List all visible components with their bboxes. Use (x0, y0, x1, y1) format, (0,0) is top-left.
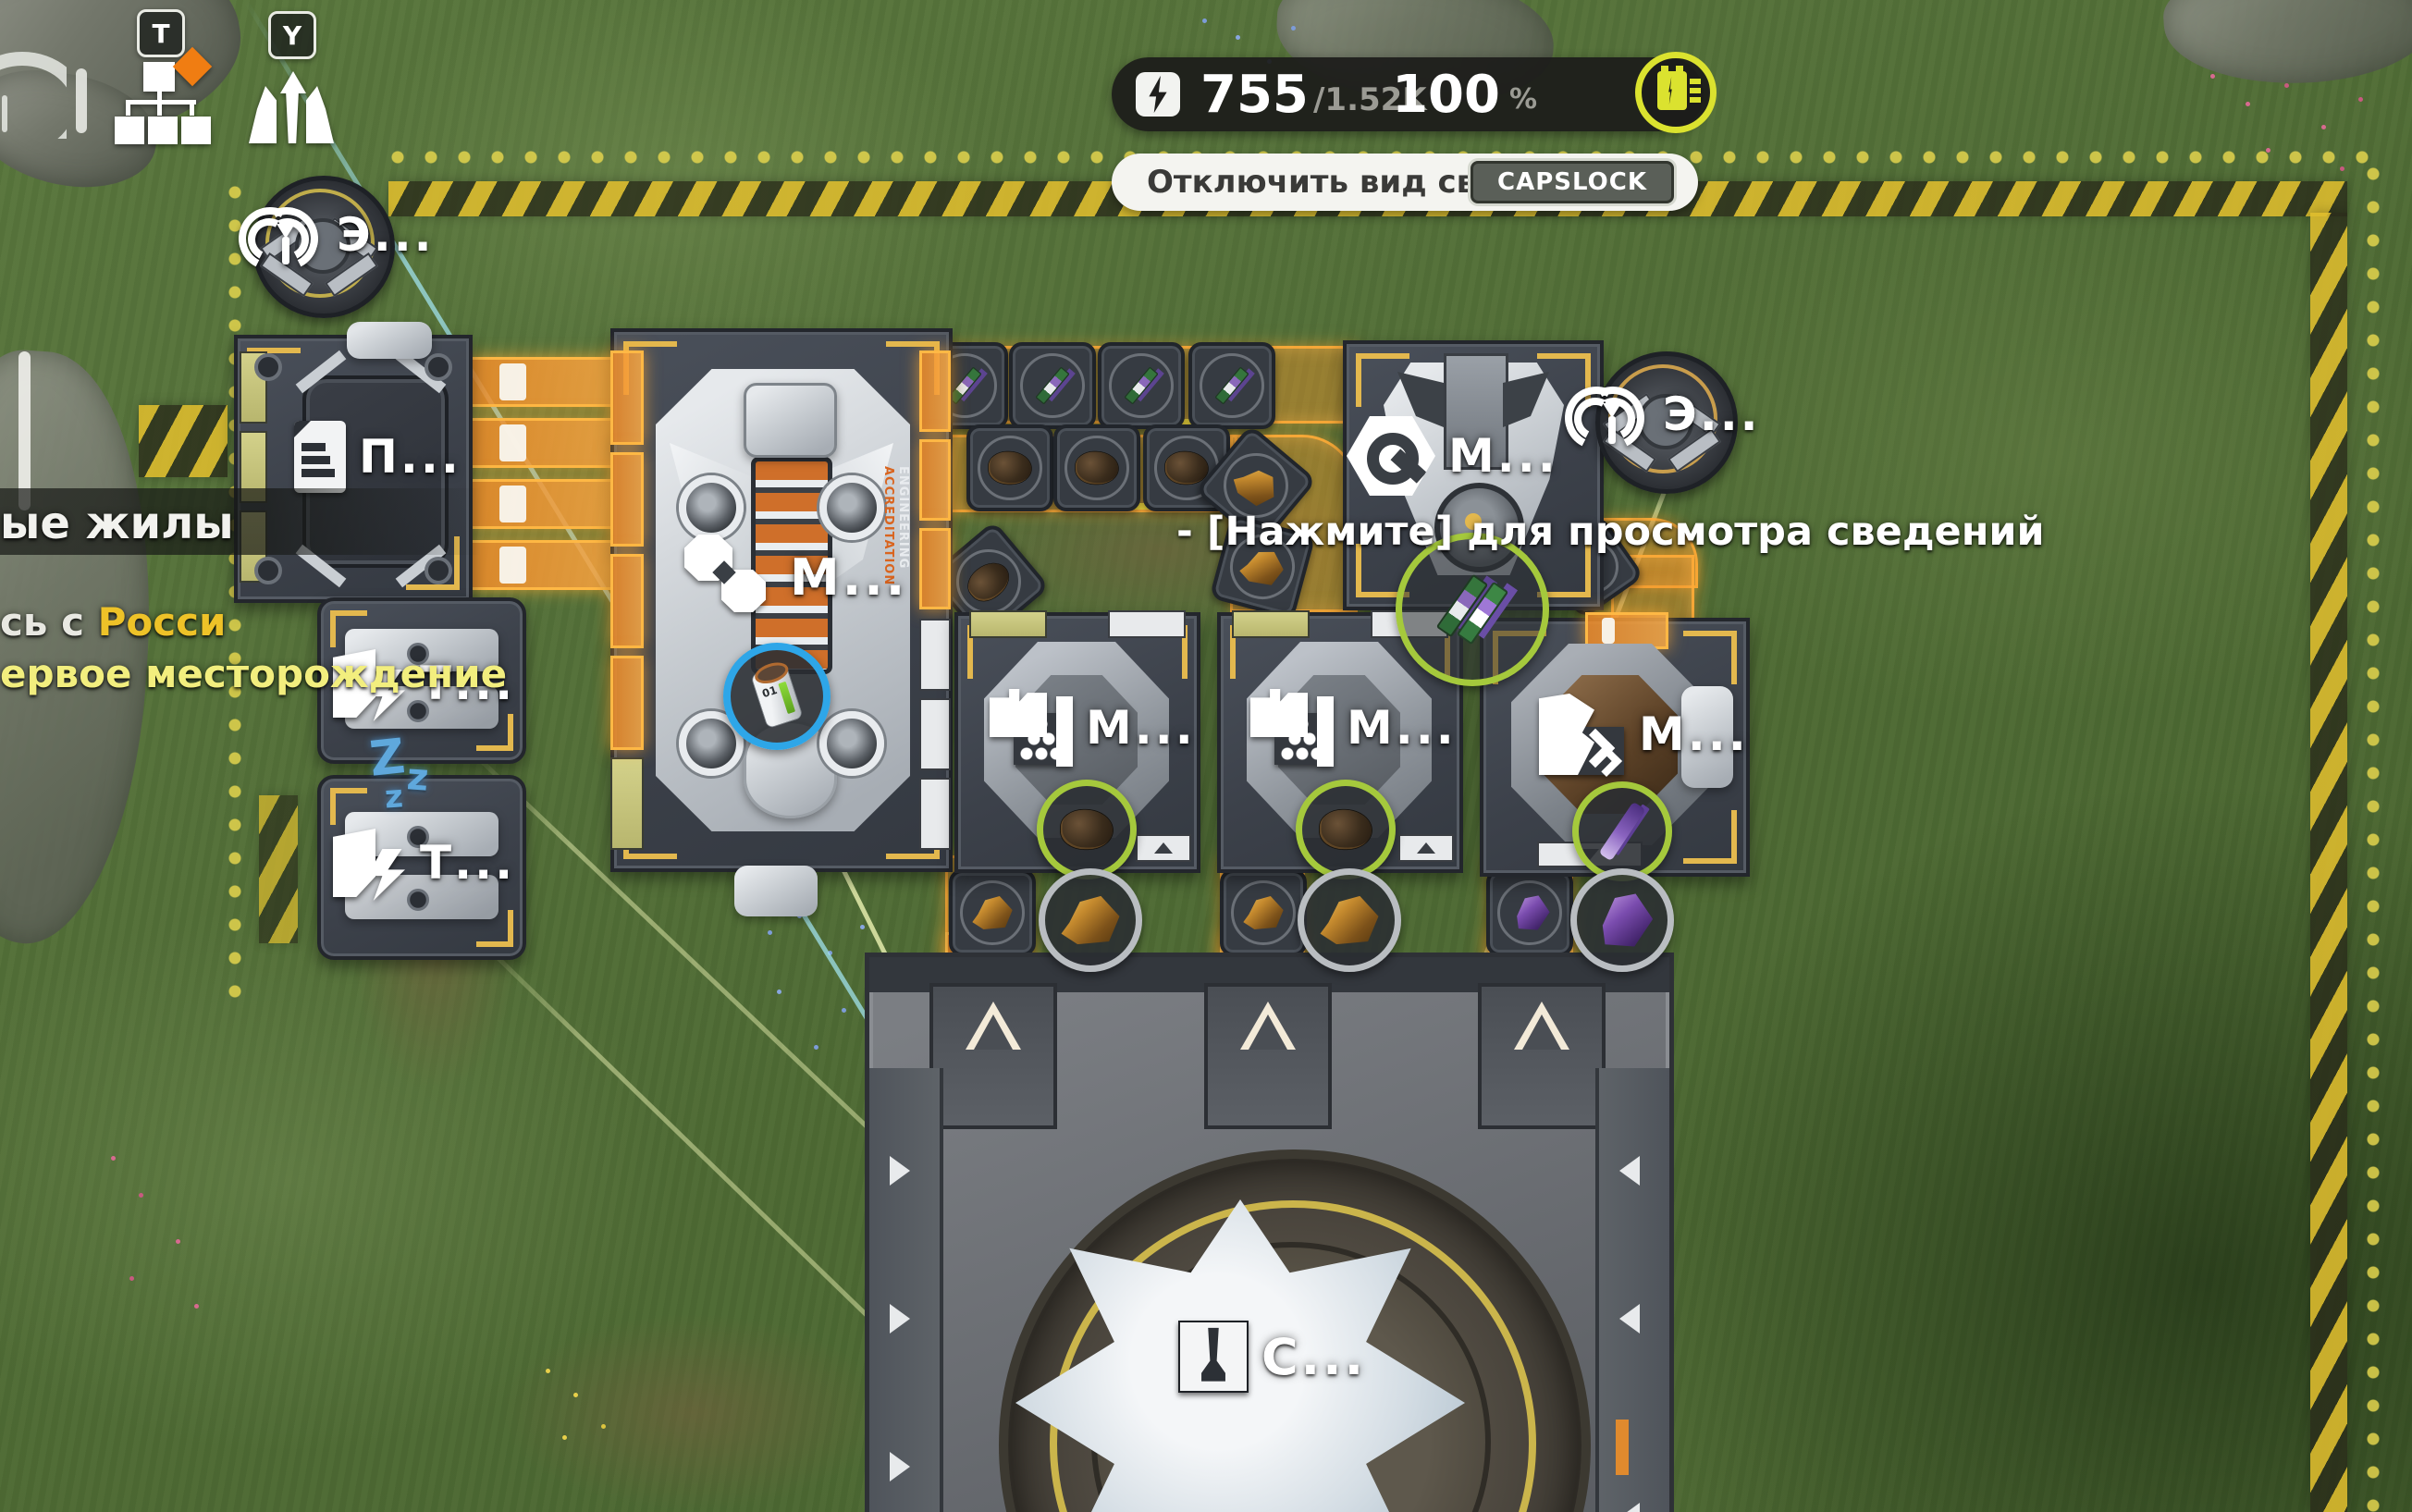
yellow-flowers (546, 1369, 550, 1373)
miner-icon (1250, 689, 1334, 767)
item-circle-ore[interactable] (1296, 780, 1396, 879)
game-viewport: ENGINEERING ACCREDITATION (0, 0, 2412, 1512)
assembler-label: М... (1347, 416, 1558, 496)
silo-platform[interactable] (865, 953, 1674, 1512)
upgrade-icon[interactable] (247, 71, 336, 145)
belt-pod-circuit[interactable] (1098, 342, 1185, 429)
quest-line: сь с Росси (0, 599, 226, 645)
inspect-tooltip: - [Нажмите] для просмотра сведений (1176, 509, 2045, 555)
item-circle-ore[interactable] (1298, 868, 1401, 972)
pink-flowers (111, 1156, 116, 1161)
key-hint-upgrade: Y (268, 11, 316, 59)
belt-pod-circuit[interactable] (1188, 342, 1275, 429)
key-hint-tech-tree: T (137, 9, 185, 57)
item-circle-crystal[interactable] (1570, 868, 1674, 972)
item-circle-circuit[interactable] (1396, 533, 1549, 686)
partial-hud-glyph (2, 95, 7, 132)
generator-icon (333, 825, 407, 901)
lightning-icon (1136, 72, 1180, 117)
view-toggle-toast: Отключить вид сверху CAPSLOCK (1112, 154, 1698, 211)
quest-objective: ервое месторождение (0, 651, 507, 696)
boundary-hazard-segment (139, 405, 228, 477)
storage-label: П... (294, 421, 461, 493)
boundary-hazard-right (2310, 213, 2347, 1512)
belt-pod-ore[interactable] (1220, 869, 1307, 956)
belt-pod-circuit[interactable] (1009, 342, 1096, 429)
blue-flowers (1202, 18, 1207, 23)
item-circle-ore[interactable] (1037, 780, 1137, 879)
document-icon (294, 421, 346, 493)
item-circle-ore[interactable] (1039, 868, 1142, 972)
tech-tree-icon[interactable] (111, 55, 222, 148)
belt-pod-ore[interactable] (949, 869, 1036, 956)
crusher-icon (1539, 694, 1626, 775)
power-current: 755 (1200, 65, 1309, 125)
antenna-icon (1572, 381, 1650, 448)
item-circle-battery[interactable]: 01 (723, 643, 831, 750)
miner-label: М... (1250, 689, 1457, 767)
miner-label: М... (1539, 694, 1749, 775)
item-circle-crystal[interactable] (1572, 781, 1672, 881)
power-percent: 100 (1392, 65, 1500, 125)
miner-label: М... (990, 689, 1196, 767)
silo-icon (1178, 1321, 1249, 1393)
scroll-indicator (18, 351, 31, 510)
battery-code: 01 (760, 683, 779, 700)
antenna-icon (246, 202, 324, 268)
boundary-dotted-right (2366, 165, 2381, 1512)
miner-icon (990, 689, 1073, 767)
sleep-icon: Z z z (370, 731, 453, 823)
dirt-patch (499, 1313, 888, 1512)
pole-label: Э... (1572, 381, 1761, 448)
wrench-hex-icon (1347, 416, 1435, 496)
belt-pod-crystal[interactable] (1486, 869, 1573, 956)
belt-pod-ore[interactable] (1053, 424, 1140, 511)
pole-label: Э... (246, 202, 435, 268)
silo-label: С... (1178, 1321, 1366, 1393)
partial-hud-glyph (0, 52, 67, 139)
refinery-icon (684, 535, 777, 620)
refinery-label: М... (684, 535, 907, 620)
pink-flowers (2210, 74, 2215, 79)
percent-sign: % (1509, 83, 1537, 116)
generator-label: Т... (333, 825, 515, 901)
belt-pod-ore[interactable] (966, 424, 1053, 511)
quest-title: ые жилы (0, 498, 234, 549)
boundary-hazard-segment (259, 795, 298, 943)
capslock-keycap: CAPSLOCK (1471, 161, 1674, 203)
partial-hud-glyph (76, 68, 87, 133)
power-bar: 755 /1.52K 100 % (1112, 57, 1704, 131)
battery-icon (1635, 52, 1717, 133)
